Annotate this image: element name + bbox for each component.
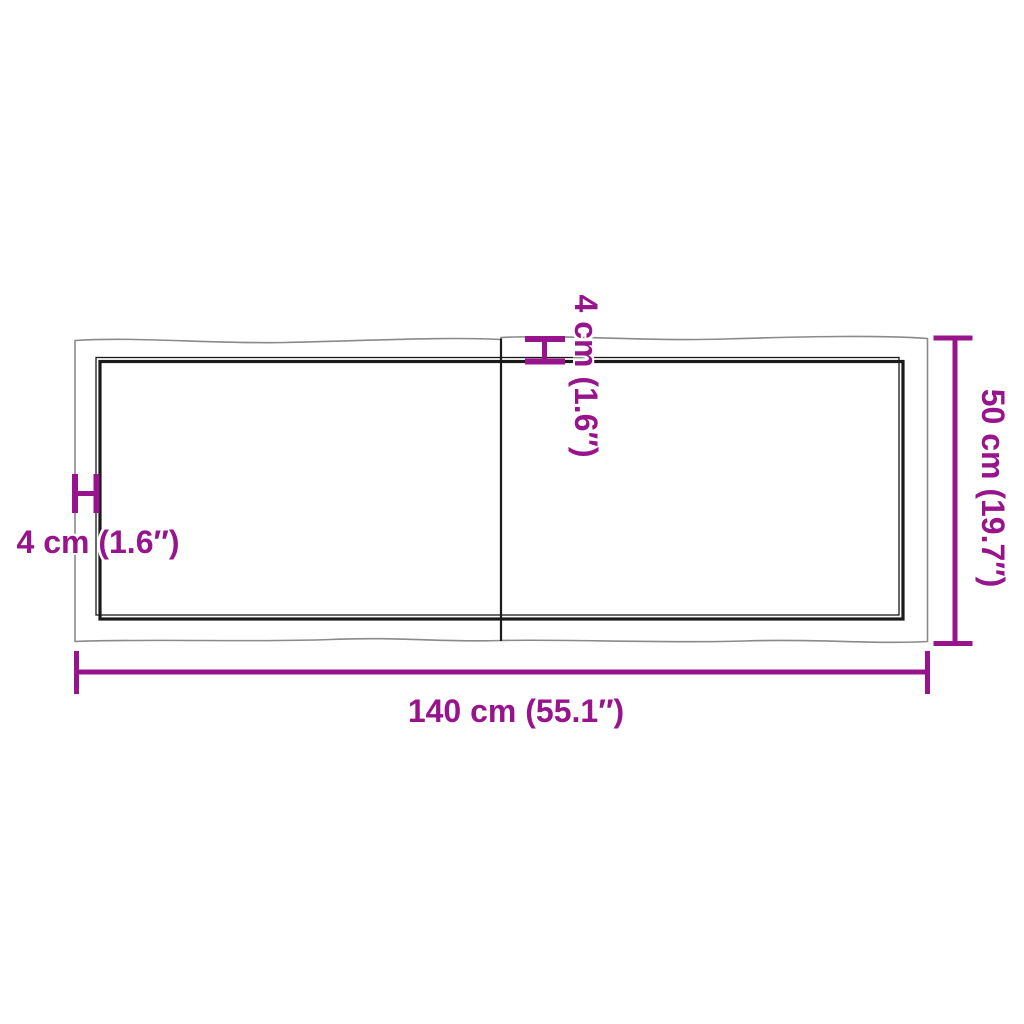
top-thickness-label: 4 cm (1.6″) [570, 295, 602, 458]
dimension-diagram: 140 cm (55.1″) 50 cm (19.7″) 4 cm (1.6″)… [0, 0, 1024, 1024]
width-dimension-label: 140 cm (55.1″) [408, 695, 624, 727]
left-plank-outline [75, 338, 501, 641]
left-thickness-label: 4 cm (1.6″) [17, 526, 180, 558]
height-dimension [934, 338, 973, 644]
height-dimension-label: 50 cm (19.7″) [977, 389, 1009, 588]
diagram-line-art [0, 0, 1024, 1024]
right-plank-outline [501, 336, 928, 642]
width-dimension [77, 651, 928, 694]
